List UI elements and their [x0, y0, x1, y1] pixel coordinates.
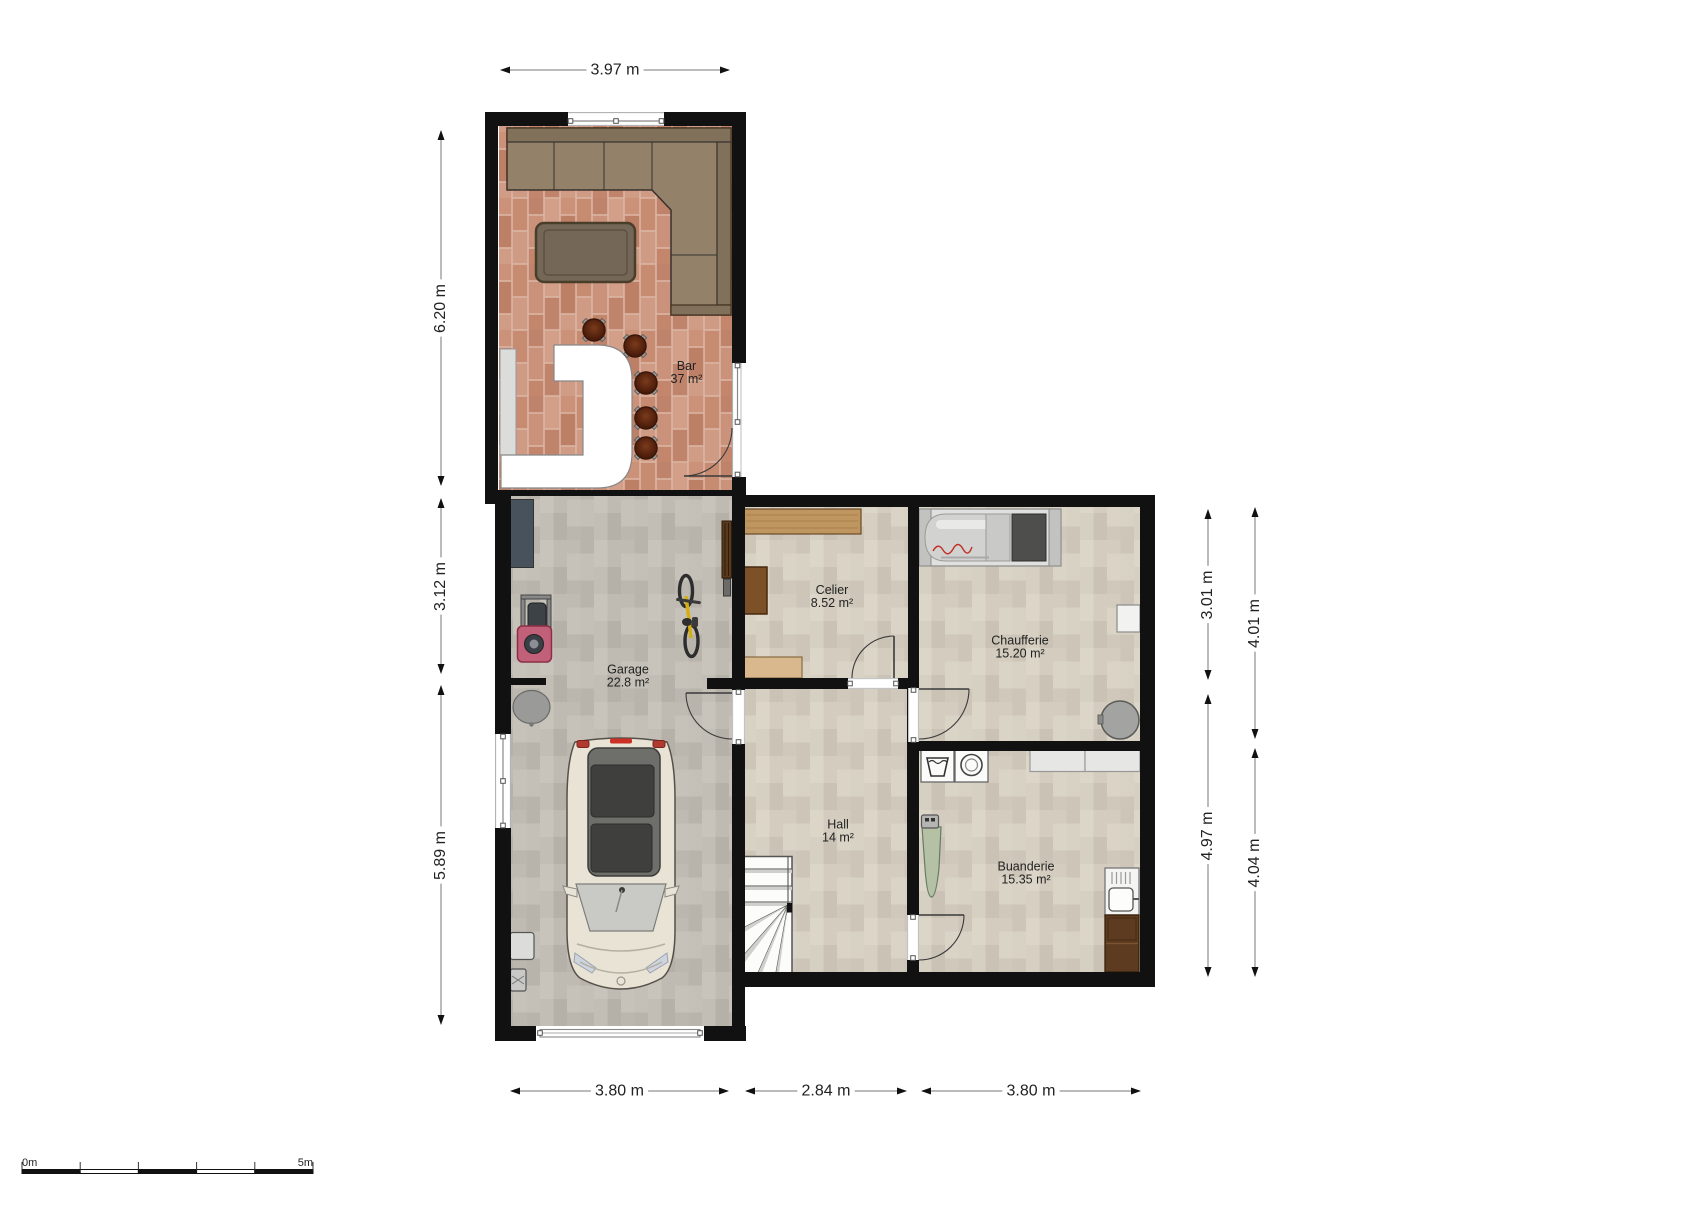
- svg-text:0m: 0m: [22, 1157, 37, 1169]
- svg-text:14 m²: 14 m²: [822, 830, 854, 844]
- svg-text:4.04 m: 4.04 m: [1246, 839, 1263, 888]
- svg-text:3.80 m: 3.80 m: [1007, 1083, 1056, 1100]
- svg-text:6.20 m: 6.20 m: [432, 284, 449, 333]
- svg-text:Chaufferie: Chaufferie: [991, 633, 1048, 647]
- svg-text:37 m²: 37 m²: [671, 372, 703, 386]
- svg-text:3.01 m: 3.01 m: [1199, 571, 1216, 620]
- svg-text:22.8 m²: 22.8 m²: [607, 675, 649, 689]
- svg-text:Garage: Garage: [607, 662, 649, 676]
- svg-text:Hall: Hall: [827, 817, 849, 831]
- svg-text:Buanderie: Buanderie: [998, 859, 1055, 873]
- svg-text:4.01 m: 4.01 m: [1246, 599, 1263, 648]
- svg-text:15.20 m²: 15.20 m²: [995, 646, 1044, 660]
- svg-text:5.89 m: 5.89 m: [432, 831, 449, 880]
- svg-text:2.84 m: 2.84 m: [802, 1083, 851, 1100]
- svg-text:15.35 m²: 15.35 m²: [1001, 872, 1050, 886]
- svg-text:3.12 m: 3.12 m: [432, 562, 449, 611]
- svg-text:4.97 m: 4.97 m: [1199, 812, 1216, 861]
- svg-text:5m: 5m: [298, 1157, 313, 1169]
- svg-text:3.80 m: 3.80 m: [595, 1083, 644, 1100]
- svg-text:Bar: Bar: [677, 359, 696, 373]
- svg-text:Celier: Celier: [816, 583, 849, 597]
- svg-text:8.52 m²: 8.52 m²: [811, 596, 853, 610]
- svg-text:3.97 m: 3.97 m: [591, 62, 640, 79]
